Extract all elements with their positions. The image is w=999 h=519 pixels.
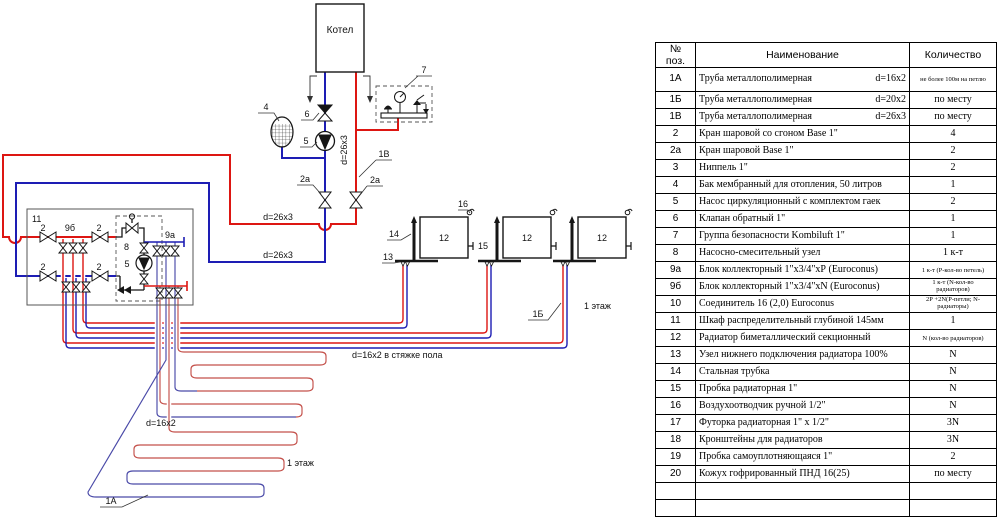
spec-name-cell: Стальная трубка xyxy=(696,364,910,381)
svg-text:7: 7 xyxy=(421,65,426,75)
svg-text:13: 13 xyxy=(383,252,393,262)
spec-row: 20Кожух гофрированный ПНД 16(25)по месту xyxy=(656,466,997,483)
svg-text:5: 5 xyxy=(303,136,308,146)
spec-pos-cell: 19 xyxy=(656,449,696,466)
svg-text:d=16x2: d=16x2 xyxy=(146,418,176,428)
spec-name-cell: Бак мембранный для отопления, 50 литров xyxy=(696,177,910,194)
spec-name-cell xyxy=(696,483,910,500)
spec-pos-cell: 3 xyxy=(656,160,696,177)
spec-qty-cell: N xyxy=(910,398,997,415)
spec-name-cell: Пробка самоуплотняющаяся 1" xyxy=(696,449,910,466)
spec-row: 17Футорка радиаторная 1" х 1/2"3N xyxy=(656,415,997,432)
heating-schematic: Котел xyxy=(0,0,655,519)
spec-qty-cell: 1 к-т (N-кол-во радиаторов) xyxy=(910,279,997,296)
svg-text:2: 2 xyxy=(40,223,45,233)
spec-qty-cell xyxy=(910,500,997,517)
pipe-size: d=16x2 xyxy=(875,74,906,85)
spec-col-header-0: № поз. xyxy=(656,43,696,68)
spec-row: 1АТруба металлополимернаяd=16x2не более … xyxy=(656,68,997,92)
spec-name-cell: Насосно-смесительный узел xyxy=(696,245,910,262)
spec-pos-cell: 4 xyxy=(656,177,696,194)
spec-pos-cell: 9б xyxy=(656,279,696,296)
svg-text:4: 4 xyxy=(263,102,268,112)
spec-qty-cell: 4 xyxy=(910,126,997,143)
specification-table: № поз.НаименованиеКоличество 1АТруба мет… xyxy=(655,42,997,517)
radiator-plug xyxy=(551,242,556,250)
spec-name-cell: Группа безопасности Kombiluft 1" xyxy=(696,228,910,245)
spec-pos-cell: 1А xyxy=(656,68,696,92)
spec-pos-cell: 1В xyxy=(656,109,696,126)
spec-row: 16Воздухоотводчик ручной 1/2"N xyxy=(656,398,997,415)
pipe-size: d=20x2 xyxy=(875,95,906,106)
air-vent-icon xyxy=(625,210,630,215)
spec-name-cell: Пробка радиаторная 1" xyxy=(696,381,910,398)
ball-valve-icon xyxy=(92,271,108,281)
svg-text:1 этаж: 1 этаж xyxy=(584,301,611,311)
spec-pos-cell: 2а xyxy=(656,143,696,160)
spec-name-cell: Блок коллекторный 1"х3/4"хN (Euroconus) xyxy=(696,279,910,296)
spec-pos-cell: 20 xyxy=(656,466,696,483)
spec-name-cell: Кожух гофрированный ПНД 16(25) xyxy=(696,466,910,483)
flow-arrow-icon xyxy=(307,96,373,103)
spec-qty-cell: по месту xyxy=(910,109,997,126)
spec-pos-cell: 5 xyxy=(656,194,696,211)
spec-qty-cell: 2 xyxy=(910,160,997,177)
expansion-tank xyxy=(271,117,293,147)
boiler: Котел xyxy=(307,4,373,103)
spec-qty-cell: 3N xyxy=(910,432,997,449)
ball-valve-icon xyxy=(40,232,56,242)
spec-pos-cell: 12 xyxy=(656,330,696,347)
spec-qty-cell: N xyxy=(910,364,997,381)
svg-text:9б: 9б xyxy=(65,223,75,233)
valves xyxy=(40,105,362,298)
spec-pos-cell: 1Б xyxy=(656,92,696,109)
safety-group xyxy=(376,86,432,122)
radiator-plug xyxy=(626,242,631,250)
spec-row: 8Насосно-смесительный узел1 к-т xyxy=(656,245,997,262)
svg-text:2а: 2а xyxy=(300,174,310,184)
boiler-label: Котел xyxy=(327,25,354,36)
spec-pos-cell: 11 xyxy=(656,313,696,330)
svg-text:12: 12 xyxy=(439,233,449,243)
spec-col-header-2: Количество xyxy=(910,43,997,68)
spec-qty-cell xyxy=(910,483,997,500)
spec-qty-cell: 1 xyxy=(910,228,997,245)
svg-text:5: 5 xyxy=(124,259,129,269)
spec-pos-cell: 9а xyxy=(656,262,696,279)
spec-qty-cell: N xyxy=(910,347,997,364)
svg-text:12: 12 xyxy=(522,233,532,243)
spec-pos-cell: 6 xyxy=(656,211,696,228)
svg-text:16: 16 xyxy=(458,199,468,209)
spec-name-cell: Кран шаровой со сгоном Base 1" xyxy=(696,126,910,143)
spec-row: 15Пробка радиаторная 1"N xyxy=(656,381,997,398)
spec-qty-cell: по месту xyxy=(910,92,997,109)
svg-text:1А: 1А xyxy=(105,496,116,506)
spec-row: 5Насос циркуляционный с комплектом гаек2 xyxy=(656,194,997,211)
spec-row: 1БТруба металлополимернаяd=20x2по месту xyxy=(656,92,997,109)
spec-row: 14Стальная трубкаN xyxy=(656,364,997,381)
svg-text:2: 2 xyxy=(96,223,101,233)
spec-name-cell: Кронштейны для радиаторов xyxy=(696,432,910,449)
spec-row: 2Кран шаровой со сгоном Base 1"4 xyxy=(656,126,997,143)
spec-pos-cell xyxy=(656,483,696,500)
air-vent-icon xyxy=(550,210,555,215)
spec-header-row: № поз.НаименованиеКоличество xyxy=(656,43,997,68)
spec-name-cell: Футорка радиаторная 1" х 1/2" xyxy=(696,415,910,432)
svg-text:d=16x2 в стяжке пола: d=16x2 в стяжке пола xyxy=(352,350,443,360)
spec-qty-cell: 1 к-т xyxy=(910,245,997,262)
spec-qty-cell: 1 xyxy=(910,177,997,194)
spec-pos-cell: 13 xyxy=(656,347,696,364)
spec-qty-cell: 2Р +2N(Р-петли; N-радиаторы) xyxy=(910,296,997,313)
ball-valve-icon xyxy=(319,192,331,208)
svg-text:1В: 1В xyxy=(378,149,389,159)
svg-text:1 этаж: 1 этаж xyxy=(287,458,314,468)
spec-row: 19Пробка самоуплотняющаяся 1"2 xyxy=(656,449,997,466)
spec-pos-cell xyxy=(656,500,696,517)
air-vent-icon xyxy=(384,106,392,110)
spec-qty-cell: 2 xyxy=(910,143,997,160)
spec-row: 12Радиатор биметаллический секционныйN (… xyxy=(656,330,997,347)
spec-name-cell: Труба металлополимернаяd=20x2 xyxy=(696,92,910,109)
spec-pos-cell: 8 xyxy=(656,245,696,262)
spec-pos-cell: 10 xyxy=(656,296,696,313)
check-valve-icon xyxy=(318,105,332,113)
svg-text:2: 2 xyxy=(96,262,101,272)
spec-pos-cell: 15 xyxy=(656,381,696,398)
spec-qty-cell: не более 100м на петлю xyxy=(910,68,997,92)
spec-qty-cell: 1 xyxy=(910,313,997,330)
svg-text:8: 8 xyxy=(124,242,129,252)
spec-qty-cell: 1 xyxy=(910,211,997,228)
svg-text:1Б: 1Б xyxy=(533,309,544,319)
radiator-pipe-bundle xyxy=(63,239,567,348)
specification-table-wrap: № поз.НаименованиеКоличество 1АТруба мет… xyxy=(655,42,996,517)
spec-row: 10Соединитель 16 (2,0) Eurocоnus2Р +2N(Р… xyxy=(656,296,997,313)
spec-row: 13Узел нижнего подключения радиатора 100… xyxy=(656,347,997,364)
spec-name-cell: Радиатор биметаллический секционный xyxy=(696,330,910,347)
spec-col-header-1: Наименование xyxy=(696,43,910,68)
spec-name-cell: Шкаф распределительный глубиной 145мм xyxy=(696,313,910,330)
spec-qty-cell: 2 xyxy=(910,449,997,466)
spec-row xyxy=(656,500,997,517)
spec-row: 4Бак мембранный для отопления, 50 литров… xyxy=(656,177,997,194)
spec-name-cell: Клапан обратный 1" xyxy=(696,211,910,228)
spec-pos-cell: 2 xyxy=(656,126,696,143)
radiator-plug xyxy=(468,242,473,250)
spec-row xyxy=(656,483,997,500)
spec-row: 9бБлок коллекторный 1"х3/4"хN (Euroconus… xyxy=(656,279,997,296)
spec-qty-cell: 1 к-т (Р-кол-во петель) xyxy=(910,262,997,279)
spec-row: 9аБлок коллекторный 1"х3/4"хР (Euroconus… xyxy=(656,262,997,279)
spec-row: 18Кронштейны для радиаторов3N xyxy=(656,432,997,449)
heating-scheme-page: Котел xyxy=(0,0,999,519)
spec-qty-cell: 3N xyxy=(910,415,997,432)
svg-text:d=26x3: d=26x3 xyxy=(339,135,349,165)
svg-text:6: 6 xyxy=(304,109,309,119)
ball-valve-icon xyxy=(92,232,108,242)
svg-text:d=26x3: d=26x3 xyxy=(263,250,293,260)
svg-text:14: 14 xyxy=(389,229,399,239)
spec-row: 7Группа безопасности Kombiluft 1"1 xyxy=(656,228,997,245)
spec-name-cell xyxy=(696,500,910,517)
spec-row: 3Ниппель 1"2 xyxy=(656,160,997,177)
svg-text:2: 2 xyxy=(40,262,45,272)
pipe-size: d=26x3 xyxy=(875,112,906,123)
spec-row: 11Шкаф распределительный глубиной 145мм1 xyxy=(656,313,997,330)
svg-text:15: 15 xyxy=(478,241,488,251)
spec-name-cell: Соединитель 16 (2,0) Eurocоnus xyxy=(696,296,910,313)
spec-name-cell: Блок коллекторный 1"х3/4"хР (Euroconus) xyxy=(696,262,910,279)
spec-qty-cell: N xyxy=(910,381,997,398)
spec-pos-cell: 7 xyxy=(656,228,696,245)
spec-name-cell: Кран шаровой Base 1" xyxy=(696,143,910,160)
spec-qty-cell: N (кол-во радиаторов) xyxy=(910,330,997,347)
svg-text:d=26x3: d=26x3 xyxy=(263,212,293,222)
spec-row: 6Клапан обратный 1"1 xyxy=(656,211,997,228)
spec-name-cell: Насос циркуляционный с комплектом гаек xyxy=(696,194,910,211)
svg-text:9а: 9а xyxy=(165,230,175,240)
spec-name-cell: Ниппель 1" xyxy=(696,160,910,177)
ball-valve-icon xyxy=(40,271,56,281)
spec-name-cell: Труба металлополимернаяd=26x3 xyxy=(696,109,910,126)
spec-qty-cell: 2 xyxy=(910,194,997,211)
spec-pos-cell: 14 xyxy=(656,364,696,381)
spec-row: 2аКран шаровой Base 1"2 xyxy=(656,143,997,160)
spec-qty-cell: по месту xyxy=(910,466,997,483)
svg-text:2а: 2а xyxy=(370,175,380,185)
spec-name-cell: Труба металлополимернаяd=16x2 xyxy=(696,68,910,92)
spec-name-cell: Узел нижнего подключения радиатора 100% xyxy=(696,347,910,364)
spec-pos-cell: 17 xyxy=(656,415,696,432)
spec-name-cell: Воздухоотводчик ручной 1/2" xyxy=(696,398,910,415)
spec-row: 1ВТруба металлополимернаяd=26x3по месту xyxy=(656,109,997,126)
spec-pos-cell: 16 xyxy=(656,398,696,415)
spec-pos-cell: 18 xyxy=(656,432,696,449)
svg-text:12: 12 xyxy=(597,233,607,243)
